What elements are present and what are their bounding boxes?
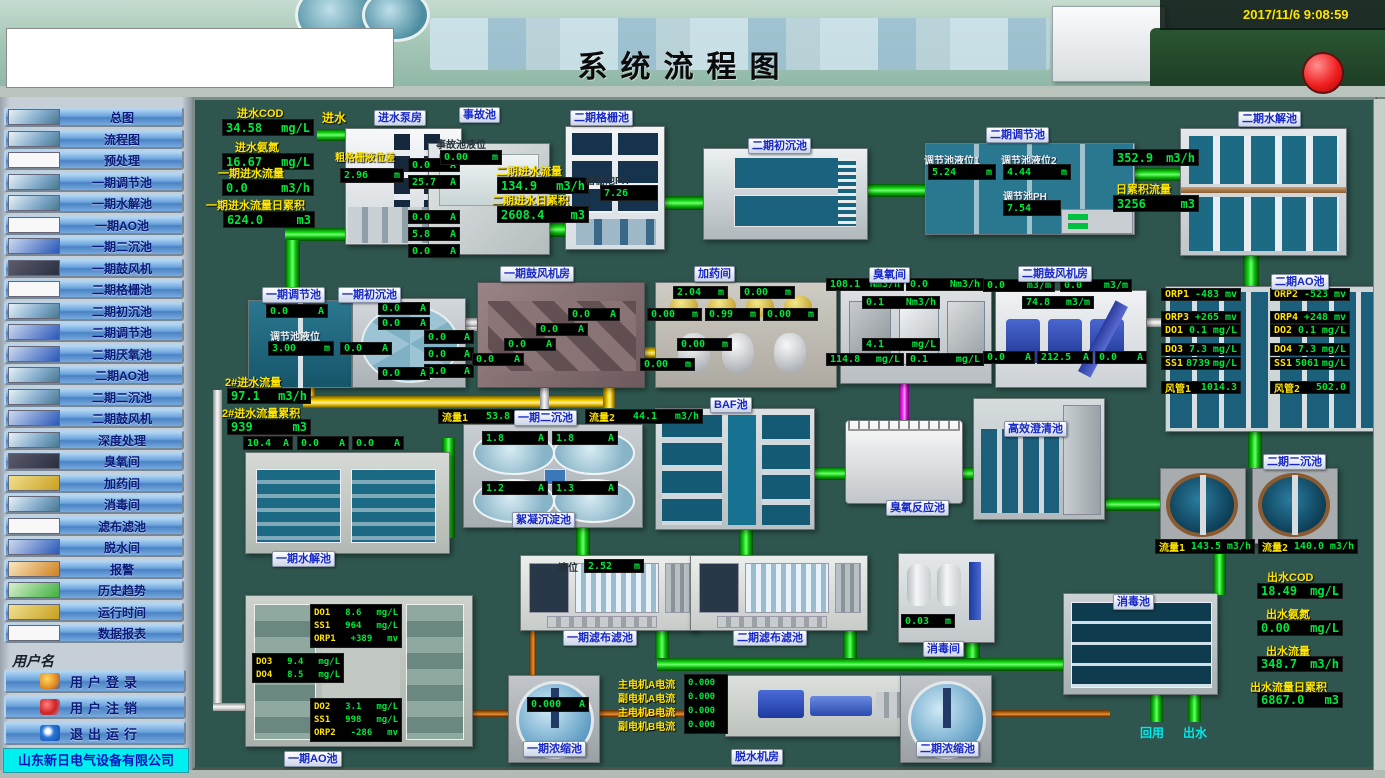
clarifier-tower: [1063, 405, 1101, 515]
sidebar-item-runtime[interactable]: 运行时间: [4, 602, 184, 622]
dewater-machine-blue: [758, 690, 804, 718]
line2-total-box: 939m3: [227, 419, 311, 435]
white-building-photo: [1052, 6, 1166, 82]
ao2-airduct1-box: 风管11014.3: [1161, 381, 1241, 394]
user-logout-icon: [40, 699, 60, 715]
basin-columns: [1189, 136, 1339, 184]
page-title: 系统流程图: [535, 42, 835, 86]
sec1-current-box: 1.8A: [482, 431, 548, 445]
p2-secondary-clarifier: [1160, 468, 1246, 544]
sidebar-item-p2-anaerobic[interactable]: 二期厌氧池: [4, 344, 184, 364]
sidebar-item-label: 预处理: [62, 152, 182, 169]
sidebar-item-p1-hydrolysis[interactable]: 一期水解池: [4, 193, 184, 213]
pipe-green: [576, 528, 590, 558]
dosing-level-box: 0.99m: [705, 308, 760, 321]
reuse-outlet-pipe: [1150, 695, 1163, 722]
dosing-level-box: 0.00m: [763, 308, 818, 321]
station-label-p2-thickener[interactable]: 二期浓缩池: [916, 741, 979, 757]
dosing-level-box: 0.00m: [647, 308, 702, 321]
blower2-current-box: 212.5A: [1037, 351, 1093, 364]
username-label: 用户名: [12, 651, 54, 671]
station-label-p2-primary[interactable]: 二期初沉池: [748, 138, 811, 154]
accident-pump-box: 0.0A: [424, 330, 474, 344]
indicator-chip: [1068, 214, 1088, 220]
sidebar-item-label: 二期鼓风机: [62, 410, 182, 427]
station-label-p1-ao[interactable]: 一期AO池: [284, 751, 342, 767]
ao2-ss2-box: SS15061mg/L: [1270, 357, 1350, 370]
basin-hatch: [351, 469, 436, 543]
sidebar-item-p2-primary[interactable]: 二期初沉池: [4, 301, 184, 321]
filter1-level-box: 2.52m: [584, 559, 644, 573]
accident-level-box: 0.00m: [440, 150, 502, 165]
reg1-current-box: 0.0A: [266, 304, 328, 318]
sidebar-item-label: 滤布滤池: [62, 518, 182, 535]
user-login-icon: [40, 673, 60, 689]
inlet-cod-box: 34.58mg/L: [222, 119, 314, 136]
company-name: 山东新日电气设备有限公司: [3, 748, 189, 773]
ao2-orp1-box: ORP1-483mv: [1161, 288, 1241, 301]
hydro1-current-box: 0.0A: [297, 436, 349, 450]
sidebar-item-label: 数据报表: [62, 625, 182, 642]
indicator-chip: [1068, 223, 1088, 229]
pipe-green: [657, 658, 1077, 671]
overview-thumbnail-icon: [8, 109, 60, 125]
primary1-current-box: 0.0A: [378, 302, 430, 315]
ozone-conc-box: 114.8mg/L: [826, 353, 904, 366]
sidebar-item-advanced-treatment[interactable]: 深度处理: [4, 430, 184, 450]
mixing-tank-silver: [774, 333, 806, 373]
dosing-level-box: 0.00m: [640, 358, 695, 371]
station-label-ozone-room[interactable]: 臭氧间: [869, 267, 910, 283]
dosing-level-box: 2.04m: [673, 286, 728, 299]
hi-efficiency-clarifier: [973, 398, 1105, 520]
filter-window-gray: [665, 563, 691, 613]
hydro2-flow-box: 352.9m3/h: [1113, 149, 1199, 166]
user-logout-label: 用户注销: [70, 698, 142, 717]
sidebar-item-p2-ao[interactable]: 二期AO池: [4, 365, 184, 385]
station-label-p1-primary[interactable]: 一期初沉池: [338, 287, 401, 303]
user-login-label: 用户登录: [70, 672, 142, 691]
pipe-green: [868, 184, 926, 197]
p1-blower-thumbnail-icon: [8, 260, 60, 276]
station-label-p1-hydrolysis[interactable]: 一期水解池: [272, 551, 335, 567]
user-login-button[interactable]: 用户登录: [4, 669, 186, 693]
filter-window-dark: [699, 563, 739, 613]
p2-ao-thumbnail-icon: [8, 367, 60, 383]
sidebar-item-p1-ao[interactable]: 一期AO池: [4, 215, 184, 235]
sidebar-item-p2-regulating[interactable]: 二期调节池: [4, 322, 184, 342]
reg1-level-box: 3.00m: [268, 341, 334, 356]
ao2-do1-box: DO10.1mg/L: [1161, 324, 1241, 337]
ozone-flow-box: 0.0Nm3/h: [906, 278, 984, 291]
p1-inflow-total-box: 624.0m3: [223, 211, 315, 228]
dewater-motor-label: 主电机B电流: [618, 704, 675, 719]
sidebar-item-disinfection-room[interactable]: 消毒间: [4, 494, 184, 514]
station-label-p1-blower-room[interactable]: 一期鼓风机房: [500, 266, 574, 282]
pipe-white: [213, 390, 222, 708]
sec1-current-box: 1.3A: [552, 481, 618, 495]
sidebar-item-label: 总图: [62, 109, 182, 126]
exit-run-icon: [40, 725, 60, 741]
blower1-current-box: 0.0A: [568, 308, 620, 321]
pipe-green: [1106, 498, 1162, 511]
sidebar-item-alarm[interactable]: 报警: [4, 559, 184, 579]
sidebar-item-history-trend[interactable]: 历史趋势: [4, 580, 184, 600]
station-label-hi-clarifier[interactable]: 高效澄清池: [1004, 421, 1067, 437]
ao2-do2-box: DO20.1mg/L: [1270, 324, 1350, 337]
station-label-p1-secondary[interactable]: 一期二沉池: [514, 410, 577, 426]
filter-window-gray: [835, 563, 861, 613]
station-label-p2-blower-room[interactable]: 二期鼓风机房: [1018, 266, 1092, 282]
primary1-current-box: 0.0A: [340, 342, 392, 355]
sidebar-item-label: 深度处理: [62, 432, 182, 449]
pump-current-box: 0.0A: [408, 244, 460, 258]
ozone-room-thumbnail-icon: [8, 453, 60, 469]
sidebar-item-ozone-room[interactable]: 臭氧间: [4, 451, 184, 471]
pump-current-box: 0.0A: [408, 210, 460, 224]
filter-tray: [547, 616, 657, 628]
alarm-indicator-light[interactable]: [1302, 52, 1344, 94]
exit-run-label: 退出运行: [70, 724, 142, 743]
station-label-inlet-pump-house[interactable]: 进水泵房: [374, 110, 426, 126]
pipe-green: [843, 628, 857, 660]
ao1-bottom-readout-box: DO23.1mg/L SS1998mg/L ORP2-286mv: [310, 698, 402, 742]
station-label-ozone-reactor[interactable]: 臭氧反应池: [886, 500, 949, 516]
disinfect-level-box: 0.03m: [901, 614, 955, 628]
p2-inflow-total-box: 2608.4m3: [497, 206, 589, 223]
sidebar-item-label: 臭氧间: [62, 453, 182, 470]
sidebar-item-label: 流程图: [62, 131, 182, 148]
pipe-green: [1248, 428, 1262, 468]
ao2-orp3-box: ORP3+265mv: [1161, 311, 1241, 324]
sidebar-item-label: 消毒间: [62, 496, 182, 513]
sec1-current-box: 1.2A: [482, 481, 548, 495]
disinfection-room: [898, 553, 995, 643]
pool-corner-room: [1061, 209, 1133, 234]
sidebar-item-label: 一期水解池: [62, 195, 182, 212]
p2-primary-thumbnail-icon: [8, 303, 60, 319]
sidebar-item-label: 运行时间: [62, 604, 182, 621]
flow-diagram-thumbnail-icon: [8, 131, 60, 147]
station-label-accident-pool[interactable]: 事故池: [459, 107, 500, 123]
sec2-flow2-box: 流量2140.0m3/h: [1258, 539, 1358, 554]
hydro2-total-box: 3256m3: [1113, 195, 1199, 212]
sidebar-item-label: 一期AO池: [62, 217, 182, 234]
ozone-generator: [849, 301, 891, 361]
weir-hatch: [838, 158, 856, 226]
sidebar-item-dosing-room[interactable]: 加药间: [4, 473, 184, 493]
station-label-p1-regulating[interactable]: 一期调节池: [262, 287, 325, 303]
pipe-yellow: [303, 396, 615, 408]
filter-discs: [745, 563, 829, 613]
primary1-current-box: 0.0A: [378, 317, 430, 330]
p2-hydrolysis-pool: [1180, 128, 1347, 256]
sidebar-item-label: 一期调节池: [62, 174, 182, 191]
basin-columns: [1189, 197, 1339, 251]
pretreatment-thumbnail-icon: [8, 152, 60, 168]
exit-run-button[interactable]: 退出运行: [4, 721, 186, 745]
sidebar-item-data-report[interactable]: 数据报表: [4, 623, 184, 643]
pipe-green: [655, 628, 669, 660]
blower2-current-box: 0.0A: [1095, 351, 1147, 364]
sidebar-item-label: 二期AO池: [62, 367, 182, 384]
out-cod-box: 18.49mg/L: [1257, 583, 1343, 599]
station-label-p2-secondary[interactable]: 二期二沉池: [1263, 454, 1326, 470]
runtime-bars-icon: [8, 604, 60, 620]
report-table-icon: [8, 625, 60, 641]
station-label-p2-cloth-filter[interactable]: 二期滤布滤池: [733, 630, 807, 646]
out-nh3-box: 0.00mg/L: [1257, 620, 1343, 636]
reg2-ph-box: 7.54: [1003, 200, 1061, 216]
thickener1-current-box: 0.000A: [527, 697, 589, 712]
p1-ao-thumbnail-icon: [8, 217, 60, 233]
sec1-flow2-box: 流量244.1m3/h: [585, 409, 703, 424]
dewater-machine-blue: [810, 696, 872, 716]
ao2-ss1-box: SS18739mg/L: [1161, 357, 1241, 370]
header-photo: 系统流程图 2017/11/6 9:08:59: [0, 0, 1385, 99]
reg2-level2-box: 4.44m: [1003, 164, 1071, 180]
scraper-bridge: [1200, 475, 1206, 535]
sidebar-item-label: 二期调节池: [62, 324, 182, 341]
sidebar-item-pretreatment[interactable]: 预处理: [4, 150, 184, 170]
station-label-flocculation[interactable]: 絮凝沉淀池: [512, 512, 575, 528]
blower2-current-box: 0.0A: [983, 351, 1035, 364]
hydro1-current-box: 10.4A: [243, 436, 293, 450]
clarifier-panels: [981, 429, 1059, 513]
pipe-green: [739, 528, 753, 558]
p2-grille-thumbnail-icon: [8, 281, 60, 297]
p2-primary-sedimentation: [703, 148, 868, 240]
storage-tank: [907, 564, 931, 606]
filter-pool-thumbnail-icon: [8, 518, 60, 534]
p2-regulating-thumbnail-icon: [8, 324, 60, 340]
sidebar-item-p1-secondary[interactable]: 一期二沉池: [4, 236, 184, 256]
reg2-level1-box: 5.24m: [928, 164, 996, 180]
dewatering-room-thumbnail-icon: [8, 539, 60, 555]
ozone-conc-box: 0.1mg/L: [906, 353, 984, 366]
railing: [848, 421, 960, 431]
station-label-p2-hydrolysis[interactable]: 二期水解池: [1238, 111, 1301, 127]
dosing-room-thumbnail-icon: [8, 475, 60, 491]
station-label-p2-grille[interactable]: 二期格栅池: [570, 110, 633, 126]
reuse-outlet-pipe: [1188, 695, 1201, 722]
p2-anaerobic-thumbnail-icon: [8, 346, 60, 362]
p1-hydrolysis-thumbnail-icon: [8, 195, 60, 211]
sidebar-item-label: 一期鼓风机: [62, 260, 182, 277]
station-label-dewatering[interactable]: 脱水机房: [731, 749, 783, 765]
storage-tank: [937, 564, 961, 606]
grille-ph-box: 7.26: [600, 185, 658, 201]
sec2-flow1-box: 流量1143.5m3/h: [1155, 539, 1255, 554]
thickener-drive: [943, 688, 951, 728]
baf-pool: [655, 408, 815, 530]
reuse-label: 回用: [1140, 724, 1164, 741]
sidebar-item-p2-secondary[interactable]: 二期二沉池: [4, 387, 184, 407]
pump-current-box: 25.7A: [408, 175, 460, 189]
sidebar-item-p2-blower[interactable]: 二期鼓风机: [4, 408, 184, 428]
station-label-p2-regulating[interactable]: 二期调节池: [986, 127, 1049, 143]
station-label-disinfection-room[interactable]: 消毒间: [923, 641, 964, 657]
hydro1-current-box: 0.0A: [352, 436, 404, 450]
blower2-flow-box: 74.8m3/m: [1022, 296, 1094, 309]
ao2-orp4-box: ORP4+248mv: [1270, 311, 1350, 324]
accident-pump-box: 0.0A: [424, 364, 474, 378]
line2-flow-box: 97.1m3/h: [227, 388, 311, 404]
dosing-level-box: 0.00m: [740, 286, 795, 299]
overlay-box: [6, 28, 394, 88]
sidebar-item-p1-blower[interactable]: 一期鼓风机: [4, 258, 184, 278]
scraper-bridge: [1292, 475, 1298, 535]
ao2-do4-box: DO47.3mg/L: [1270, 343, 1350, 356]
sidebar-item-label: 脱水间: [62, 539, 182, 556]
user-logout-button[interactable]: 用户注销: [4, 695, 186, 719]
ao2-airduct2-box: 风管2502.0: [1270, 381, 1350, 394]
sidebar-item-label: 二期二沉池: [62, 389, 182, 406]
out-flow-total-box: 6867.0m3: [1257, 692, 1343, 708]
sidebar-item-p2-grille[interactable]: 二期格栅池: [4, 279, 184, 299]
outlet-label: 出水: [1183, 724, 1207, 741]
sidebar-item-label: 二期格栅池: [62, 281, 182, 298]
sidebar-item-label: 加药间: [62, 475, 182, 492]
ao1-top-readout-box: DO18.6mg/L SS1964mg/L ORP1+389mv: [310, 604, 402, 648]
pipe-green: [660, 196, 704, 210]
pool-water-lanes: [1071, 602, 1212, 688]
sidebar-item-label: 报警: [62, 561, 182, 578]
sludge-pipe-orange: [992, 710, 1110, 717]
advanced-treatment-thumbnail-icon: [8, 432, 60, 448]
p2-cloth-filter-unit: [690, 555, 868, 631]
dewater-current-box: 0.000 0.000 0.000 0.000: [684, 674, 728, 734]
dewater-motor-label: 主电机A电流: [618, 676, 675, 691]
p1-secondary-thumbnail-icon: [8, 238, 60, 254]
ozone-reactor-tank: [845, 420, 963, 504]
blower1-current-box: 0.0A: [472, 353, 524, 366]
dosing-level-box: 0.00m: [677, 338, 732, 351]
p2-secondary-thumbnail-icon: [8, 389, 60, 405]
p1-inflow-box: 0.0m3/h: [222, 179, 314, 196]
ao-cells: [406, 604, 464, 740]
filter-tray: [717, 616, 827, 628]
blower1-current-box: 0.0A: [504, 338, 556, 351]
filter1-level-label: 液位: [558, 559, 578, 574]
sidebar-item-flow-diagram[interactable]: 流程图: [4, 129, 184, 149]
station-label-disinfection-pool[interactable]: 消毒池: [1113, 594, 1154, 610]
accident-level-label: 事故池液位: [436, 136, 486, 151]
p2-secondary-clarifier: [1252, 468, 1338, 544]
p1-regulating-thumbnail-icon: [8, 174, 60, 190]
station-label-p1-thickener[interactable]: 一期浓缩池: [523, 741, 586, 757]
primary1-current-box: 0.0A: [378, 367, 430, 380]
inlet-pipe-label: 进水: [322, 109, 346, 126]
sidebar-item-label: 一期二沉池: [62, 238, 182, 255]
vertical-scrollbar[interactable]: [1373, 99, 1385, 770]
sidebar-item-filter-pool[interactable]: 滤布滤池: [4, 516, 184, 536]
sidebar-item-label: 二期初沉池: [62, 303, 182, 320]
basin-hatch: [256, 469, 341, 543]
station-label-baf[interactable]: BAF池: [710, 397, 752, 413]
coarse-grille-level-label: 粗格栅液位差: [335, 149, 395, 164]
sidebar-item-label: 历史趋势: [62, 582, 182, 599]
station-label-p2-ao[interactable]: 二期AO池: [1271, 274, 1329, 290]
sidebar-item-p1-regulating[interactable]: 一期调节池: [4, 172, 184, 192]
baf-cells: [662, 415, 722, 525]
station-label-p1-cloth-filter[interactable]: 一期滤布滤池: [563, 630, 637, 646]
ozone-flow-box: 0.1Nm3/h: [862, 296, 940, 309]
accident-pump-box: 0.0A: [424, 347, 474, 361]
out-flow-box: 348.7m3/h: [1257, 656, 1343, 672]
bottom-strip: [0, 770, 1385, 778]
baf-channel: [728, 415, 756, 525]
ozone-conc-box: 4.1mg/L: [862, 338, 940, 351]
sidebar-item-overview[interactable]: 总图: [4, 107, 184, 127]
dewater-motor-label: 副电机A电流: [618, 690, 675, 705]
ao2-do3-box: DO37.3mg/L: [1161, 343, 1241, 356]
p1-hydrolysis-pool: [245, 452, 450, 554]
dewater-motor-label: 副电机B电流: [618, 718, 675, 733]
coarse-grille-level-box: 2.96m: [340, 168, 404, 183]
baf-cells: [762, 415, 810, 525]
sidebar-item-label: 二期厌氧池: [62, 346, 182, 363]
pump-current-box: 5.8A: [408, 227, 460, 241]
blower1-current-box: 0.0A: [536, 323, 588, 336]
ao1-mid-readout-box: DO39.4mg/L DO48.5mg/L: [252, 653, 344, 683]
disinfection-room-thumbnail-icon: [8, 496, 60, 512]
sec1-current-box: 1.8A: [552, 431, 618, 445]
datetime: 2017/11/6 9:08:59: [1243, 7, 1349, 22]
dosing-pump-blue: [969, 562, 981, 620]
sidebar-item-dewatering-room[interactable]: 脱水间: [4, 537, 184, 557]
trend-chart-icon: [8, 582, 60, 598]
station-label-dosing-room[interactable]: 加药间: [694, 266, 735, 282]
cross-pipe: [1181, 187, 1346, 193]
p2-blower-thumbnail-icon: [8, 410, 60, 426]
alarm-horn-icon: [8, 561, 60, 577]
